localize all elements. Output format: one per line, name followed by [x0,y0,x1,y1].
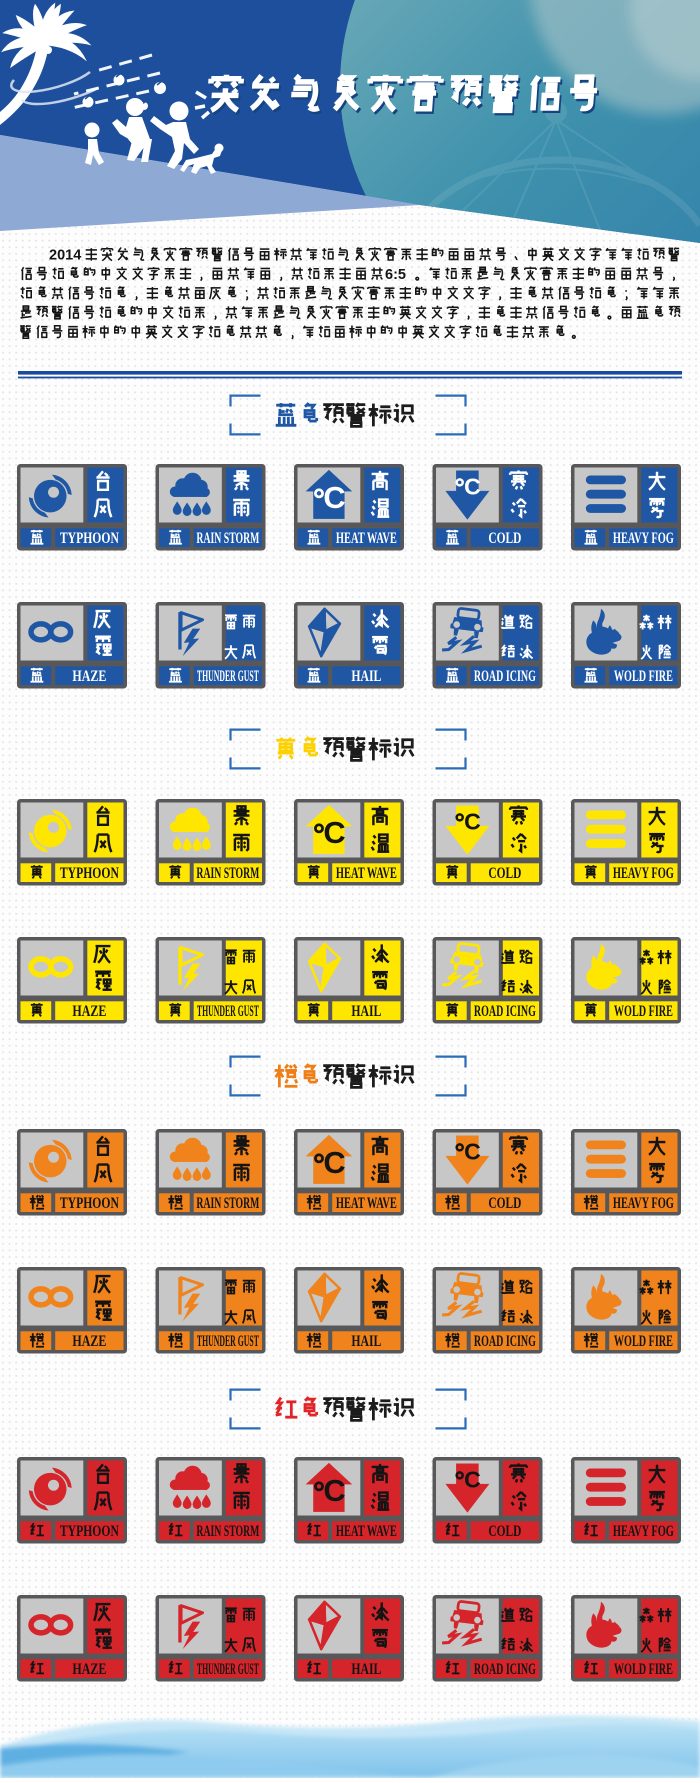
svg-text:C: C [464,1138,481,1164]
svg-text:HAIL: HAIL [351,1003,381,1020]
svg-text:TYPHOON: TYPHOON [60,865,119,882]
svg-text:HEAT WAVE: HEAT WAVE [336,1523,397,1540]
svg-text:RAIN STORM: RAIN STORM [196,865,259,882]
svg-text:TYPHOON: TYPHOON [60,1195,119,1212]
svg-text:C: C [464,473,481,499]
svg-text:COLD: COLD [488,1523,521,1540]
svg-text:THUNDER GUST: THUNDER GUST [197,1661,259,1678]
svg-text:HEAT WAVE: HEAT WAVE [336,1195,397,1212]
svg-text:COLD: COLD [488,865,521,882]
svg-text:HAIL: HAIL [351,1333,381,1350]
svg-text:HAIL: HAIL [351,668,381,685]
svg-text:HEAVY FOG: HEAVY FOG [613,865,674,882]
svg-text:WOLD FIRE: WOLD FIRE [614,1333,673,1350]
svg-text:HEAVY FOG: HEAVY FOG [613,1523,674,1540]
svg-text:HAZE: HAZE [72,1661,106,1678]
svg-text:HEAT WAVE: HEAT WAVE [336,530,397,547]
svg-text:C: C [464,808,481,834]
svg-text:ROAD ICING: ROAD ICING [474,1661,536,1678]
svg-text:HEAVY FOG: HEAVY FOG [613,1195,674,1212]
svg-text:WOLD FIRE: WOLD FIRE [614,668,673,685]
svg-text:RAIN STORM: RAIN STORM [196,1523,259,1540]
svg-text:TYPHOON: TYPHOON [60,1523,119,1540]
svg-text:WOLD FIRE: WOLD FIRE [614,1661,673,1678]
svg-text:6:5: 6:5 [385,267,406,283]
svg-text:TYPHOON: TYPHOON [60,530,119,547]
svg-text:THUNDER GUST: THUNDER GUST [197,1003,259,1020]
svg-text:C: C [323,480,345,515]
svg-text:RAIN STORM: RAIN STORM [196,1195,259,1212]
svg-text:HAIL: HAIL [351,1661,381,1678]
svg-text:THUNDER GUST: THUNDER GUST [197,1333,259,1350]
svg-text:HAZE: HAZE [72,1333,106,1350]
svg-text:C: C [323,1145,345,1180]
svg-text:COLD: COLD [488,1195,521,1212]
svg-text:THUNDER GUST: THUNDER GUST [197,668,259,685]
svg-text:HAZE: HAZE [72,1003,106,1020]
svg-text:2014: 2014 [49,248,81,264]
svg-text:COLD: COLD [488,530,521,547]
svg-text:C: C [323,815,345,850]
svg-text:C: C [464,1466,481,1492]
svg-text:HEAT WAVE: HEAT WAVE [336,865,397,882]
svg-text:C: C [323,1473,345,1508]
svg-text:ROAD ICING: ROAD ICING [474,668,536,685]
svg-text:ROAD ICING: ROAD ICING [474,1333,536,1350]
svg-text:HAZE: HAZE [72,668,106,685]
svg-text:RAIN STORM: RAIN STORM [196,530,259,547]
svg-text:WOLD FIRE: WOLD FIRE [614,1003,673,1020]
svg-text:ROAD ICING: ROAD ICING [474,1003,536,1020]
svg-text:HEAVY FOG: HEAVY FOG [613,530,674,547]
